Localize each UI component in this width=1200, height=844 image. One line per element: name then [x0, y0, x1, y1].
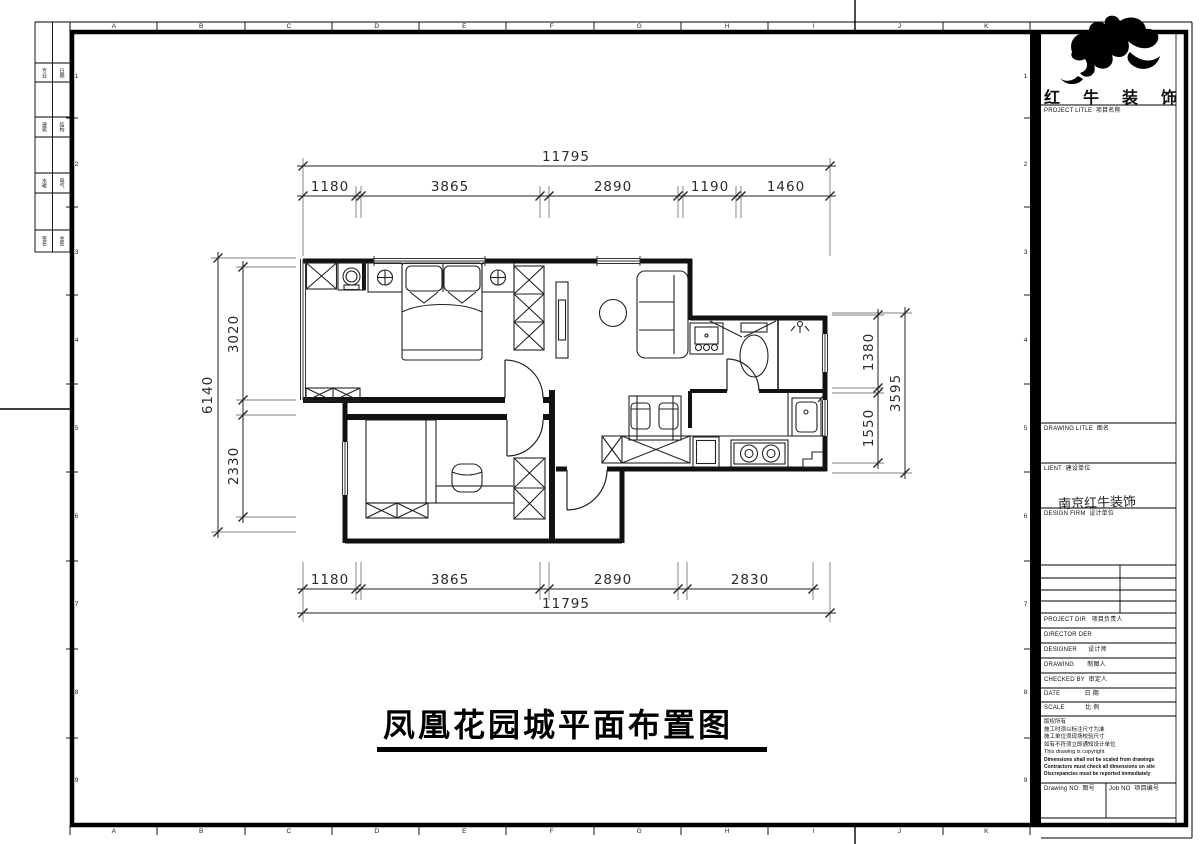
dim-top-1: 1180: [311, 179, 349, 195]
grid-label: 9: [75, 777, 79, 784]
brand-char: 红: [1044, 84, 1061, 108]
dining-furniture: [602, 396, 719, 467]
copyright-line: 施工单位须现场校验尺寸: [1044, 734, 1174, 742]
plan-title: 凤凰花园城平面布置图: [383, 700, 733, 746]
grid-label: C: [287, 23, 292, 30]
grid-label: E: [462, 23, 466, 30]
copyright-line: 如有不符须立即通知设计单位: [1044, 742, 1174, 750]
brand-char: 牛: [1083, 84, 1100, 108]
redniu-logo-icon: [1060, 16, 1160, 85]
date-label: DATE 日 期: [1044, 691, 1099, 698]
grid-label: D: [374, 828, 379, 835]
margin-label: 结构: [52, 117, 70, 137]
grid-label: 4: [75, 337, 79, 344]
grid-label: 6: [75, 513, 79, 520]
drawing-by-label: DRAWING 制图人: [1044, 662, 1106, 669]
second-bedroom-furniture: [366, 420, 545, 519]
margin-label: 建筑: [35, 117, 52, 137]
dim-bot-3: 2890: [594, 572, 632, 588]
margin-label: 电气: [52, 173, 70, 193]
dim-top-2: 3865: [431, 179, 469, 195]
grid-label: B: [199, 23, 203, 30]
dim-top-total: 11795: [542, 149, 590, 165]
grid-label: A: [112, 23, 116, 30]
scale-label: SCALE 比 例: [1044, 705, 1099, 712]
job-no-label: Job NO 项目编号: [1109, 786, 1159, 793]
margin-label: 水暖: [35, 173, 52, 193]
margin-label: 专业: [35, 63, 52, 82]
client-label: LIENT 建设单位: [1044, 466, 1090, 473]
dim-right-1: 1380: [861, 333, 877, 371]
dim-bottom-total: 11795: [542, 596, 590, 612]
grid-label: 1: [75, 73, 79, 80]
grid-label: K: [984, 23, 988, 30]
plan-title-underline: [377, 747, 767, 752]
copyright-bold-line: Contractors must check all dimensions on…: [1044, 764, 1174, 771]
drawing-sheet: 11795 1180 3865 2890 1190 1460 1180 3865…: [0, 0, 1200, 844]
grid-letters-bottom: ABCDEFGHIJK: [70, 826, 1030, 836]
checked-by-label: CHECKED BY 审定人: [1044, 677, 1107, 684]
project-title-label: PROJECT LITLE 项目名称: [1044, 108, 1121, 115]
margin-label: 日期: [52, 63, 70, 82]
margin-label: 签名: [35, 230, 52, 252]
grid-label: F: [550, 828, 554, 835]
grid-label: I: [813, 828, 815, 835]
dim-top-3: 2890: [594, 179, 632, 195]
dim-bot-1: 1180: [311, 572, 349, 588]
grid-label: 8: [75, 689, 79, 696]
grid-label: A: [112, 828, 116, 835]
master-bedroom-furniture: [368, 263, 544, 360]
grid-label: I: [813, 23, 815, 30]
dim-right-total: 3595: [888, 374, 904, 412]
brand-char: 装: [1122, 84, 1139, 108]
grid-label: H: [725, 828, 730, 835]
margin-signature-boxes: [35, 22, 70, 252]
grid-label: 7: [75, 601, 79, 608]
copyright-line: This drawing is copyright: [1044, 749, 1174, 757]
grid-label: 4: [1024, 337, 1028, 344]
copyright-block: 版权所有 施工时须以标注尺寸为准 施工单位须现场校验尺寸 如有不符须立即通知设计…: [1044, 719, 1174, 778]
grid-label: 3: [75, 249, 79, 256]
grid-label: F: [550, 23, 554, 30]
dim-left-2: 2330: [226, 447, 242, 485]
grid-label: 2: [75, 161, 79, 168]
drawing-title-label: DRAWING LITLE 图名: [1044, 426, 1109, 433]
brand-name: 红 牛 装 饰: [1044, 84, 1178, 108]
grid-label: J: [898, 828, 901, 835]
grid-label: 7: [1024, 601, 1028, 608]
designer-label: DESIGNER 设计师: [1044, 647, 1107, 654]
kitchen-fixtures: [690, 391, 825, 467]
floorplan-doors: [505, 359, 759, 510]
dim-bot-2: 3865: [431, 572, 469, 588]
grid-label: 9: [1024, 777, 1028, 784]
grid-label: G: [637, 23, 642, 30]
margin-label: 会签: [52, 230, 70, 252]
dim-right-2: 1550: [861, 409, 877, 447]
grid-label: 3: [1024, 249, 1028, 256]
grid-label: D: [374, 23, 379, 30]
grid-label: G: [637, 828, 642, 835]
grid-numbers-left: 123456789: [72, 32, 81, 825]
grid-label: J: [898, 23, 901, 30]
director-label: DIRECTOR DER: [1044, 632, 1092, 639]
dim-top-5: 1460: [767, 179, 805, 195]
grid-label: 6: [1024, 513, 1028, 520]
grid-label: E: [462, 828, 466, 835]
dim-bot-4: 2830: [731, 572, 769, 588]
grid-label: 8: [1024, 689, 1028, 696]
grid-label: 5: [75, 425, 79, 432]
grid-label: C: [287, 828, 292, 835]
drawing-no-label: Drawing NO 图号: [1044, 786, 1095, 793]
grid-label: B: [199, 828, 203, 835]
dim-left-1: 3020: [226, 315, 242, 353]
balcony-furniture: [306, 263, 365, 401]
project-dir-label: PROJECT DIR 项目负责人: [1044, 617, 1123, 624]
dim-left-total: 6140: [200, 376, 216, 414]
brand-char: 饰: [1161, 84, 1178, 108]
grid-label: 1: [1024, 73, 1028, 80]
grid-label: 2: [1024, 161, 1028, 168]
dim-top-4: 1190: [691, 179, 729, 195]
copyright-line: 版权所有: [1044, 719, 1174, 727]
grid-label: 5: [1024, 425, 1028, 432]
design-firm-value: 南京红牛装饰: [1058, 491, 1137, 513]
living-room-furniture: [556, 271, 688, 358]
grid-letters-top: ABCDEFGHIJK: [70, 21, 1030, 31]
design-firm-label: DESIGN FIRM 设计单位: [1044, 511, 1114, 518]
grid-label: H: [725, 23, 730, 30]
copyright-bold-line: Discrepancies must be reported immediate…: [1044, 771, 1174, 778]
grid-label: K: [984, 828, 988, 835]
grid-numbers-right: 123456789: [1021, 32, 1030, 825]
copyright-bold-line: Dimensions shall not be scaled from draw…: [1044, 757, 1174, 764]
